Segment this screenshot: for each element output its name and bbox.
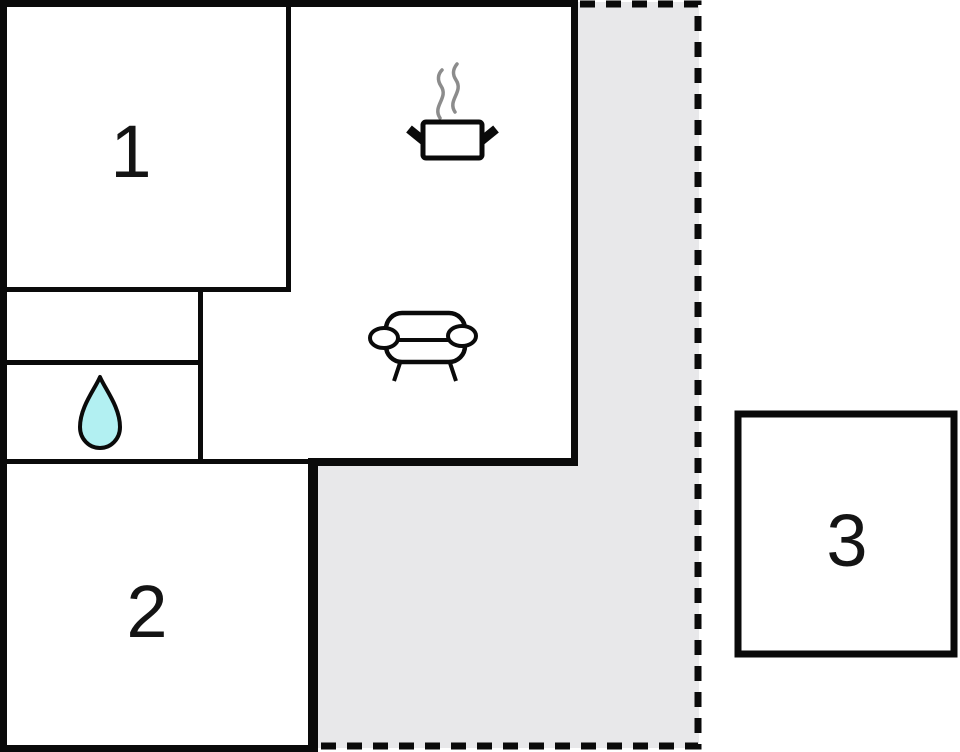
- exterior-wall-right-upper: [571, 0, 578, 466]
- pot-body: [423, 122, 482, 158]
- interior-wall-hall-divider: [0, 360, 203, 365]
- interior-wall-bathroom-bottom: [0, 459, 313, 464]
- sofa-armrest-left: [370, 328, 398, 348]
- floor-plan-canvas: 1 2 3: [0, 0, 960, 752]
- interior-wall-room1-right: [286, 0, 291, 292]
- interior-wall-room1-bottom: [0, 287, 291, 292]
- interior-wall-living-left: [198, 287, 203, 464]
- hallway-area: [7, 292, 198, 360]
- exterior-wall-mid-horizontal: [308, 458, 578, 466]
- room-2-label: 2: [126, 570, 167, 653]
- exterior-wall-bottom: [0, 745, 318, 752]
- exterior-wall-right-lower: [308, 458, 318, 752]
- room-3-label: 3: [826, 499, 867, 582]
- room-1-label: 1: [110, 110, 151, 193]
- exterior-wall-left: [0, 0, 7, 752]
- floor-plan: 1 2 3: [0, 0, 960, 752]
- sofa-armrest-right: [448, 326, 476, 346]
- living-kitchen-area: [203, 7, 571, 458]
